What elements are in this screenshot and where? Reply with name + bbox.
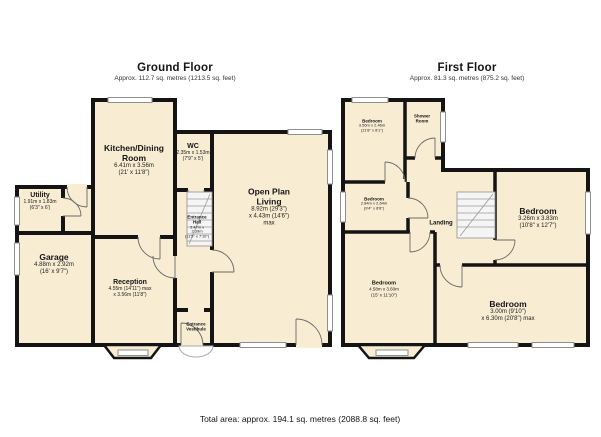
window-icon	[468, 343, 518, 348]
room-label-bedroom-rear: Bedroom 3.00m (9'10") x 6.30m (20'8") ma…	[453, 299, 563, 323]
window-icon	[108, 98, 152, 103]
window-icon	[328, 295, 333, 331]
room-label-bedroom-front: Bedroom 3.56m x 2.46m (11'8" x 8'1")	[350, 119, 394, 134]
floorplan-page: Ground Floor Approx. 112.7 sq. metres (1…	[0, 0, 601, 437]
room-label-landing: Landing	[411, 220, 471, 227]
total-area-note: Total area: approx. 194.1 sq. metres (20…	[90, 414, 510, 424]
room-label-wc: WC 2.35m x 1.53m (7'9" x 5')	[164, 143, 222, 163]
room-label-bedroom-right: Bedroom 3.26m x 3.83m (10'8" x 12'7")	[493, 206, 583, 230]
room-garage	[17, 233, 93, 345]
window-icon	[352, 98, 388, 103]
window-icon	[240, 343, 286, 348]
window-icon	[441, 112, 446, 142]
window-icon	[376, 350, 408, 356]
room-label-garage: Garage 4.88m x 2.92m (16' x 9'7")	[19, 252, 89, 276]
window-icon	[532, 343, 574, 348]
window-icon	[586, 192, 591, 234]
room-label-entrance-hall: Entrance Hall 3.47m x 2.39m (11'5" x 7'1…	[184, 215, 210, 240]
window-icon	[328, 150, 333, 184]
room-label-bedroom-bay: Bedroom 4.58m x 3.60m (15' x 11'10")	[354, 280, 414, 297]
porch-step	[179, 346, 213, 357]
floor-title-text: First Floor	[352, 62, 582, 74]
room-label-open-plan-living: Open Plan Living 8.92m (29'3") x 4.43m (…	[246, 186, 292, 227]
room-label-reception: Reception 4.55m (14'11") max x 3.56m (11…	[91, 279, 169, 299]
window-icon	[118, 350, 148, 356]
room-label-shower-room: Shower Room	[409, 114, 435, 125]
first-floor-title: First Floor Approx. 81.3 sq. metres (875…	[352, 62, 582, 82]
room-label-entrance-vestibule: Entrance Vestibule	[181, 322, 211, 333]
room-label-bedroom-mid: Bedroom 2.84m x 2.64m (9'4" x 8'8")	[352, 197, 396, 212]
stairs-first	[457, 192, 495, 238]
window-icon	[288, 130, 322, 135]
ground-floor-plan	[15, 98, 333, 359]
window-icon	[341, 192, 346, 222]
room-open-plan-living	[212, 132, 330, 345]
floor-subtitle-text: Approx. 112.7 sq. metres (1213.5 sq. fee…	[60, 75, 290, 82]
floor-title-text: Ground Floor	[60, 62, 290, 74]
ground-floor-title: Ground Floor Approx. 112.7 sq. metres (1…	[60, 62, 290, 82]
floor-subtitle-text: Approx. 81.3 sq. metres (875.2 sq. feet)	[352, 75, 582, 82]
room-label-utility: Utility 1.91m x 1.83m (6'3" x 6')	[12, 192, 68, 212]
